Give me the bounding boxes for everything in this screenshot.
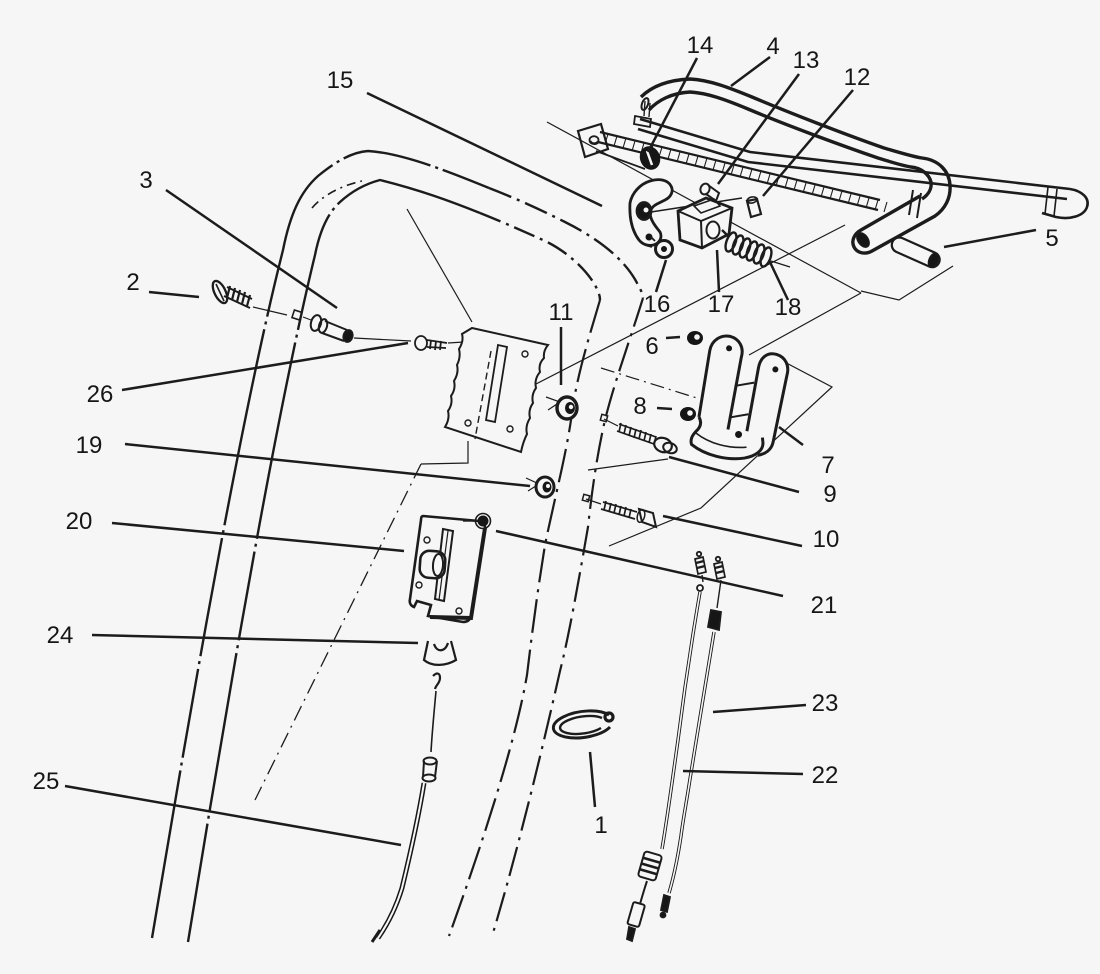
svg-text:13: 13 xyxy=(793,47,820,74)
svg-text:3: 3 xyxy=(139,167,152,194)
svg-text:12: 12 xyxy=(844,64,871,91)
svg-text:22: 22 xyxy=(812,762,839,789)
svg-text:25: 25 xyxy=(33,768,60,795)
svg-text:15: 15 xyxy=(327,67,354,94)
svg-text:2: 2 xyxy=(126,269,139,296)
svg-text:7: 7 xyxy=(821,452,834,479)
svg-text:9: 9 xyxy=(823,481,836,508)
svg-text:10: 10 xyxy=(813,526,840,553)
svg-text:5: 5 xyxy=(1045,225,1058,252)
svg-text:23: 23 xyxy=(812,690,839,717)
svg-text:19: 19 xyxy=(76,432,103,459)
svg-text:20: 20 xyxy=(66,508,93,535)
svg-text:8: 8 xyxy=(633,393,646,420)
svg-text:1: 1 xyxy=(594,812,607,839)
svg-text:26: 26 xyxy=(87,381,114,408)
svg-text:17: 17 xyxy=(708,291,735,318)
svg-text:6: 6 xyxy=(645,333,658,360)
svg-text:4: 4 xyxy=(766,33,779,60)
svg-text:24: 24 xyxy=(47,622,74,649)
svg-text:14: 14 xyxy=(687,32,714,59)
svg-text:16: 16 xyxy=(644,291,671,318)
svg-text:11: 11 xyxy=(549,299,574,326)
svg-text:21: 21 xyxy=(811,592,838,619)
svg-text:18: 18 xyxy=(775,294,802,321)
